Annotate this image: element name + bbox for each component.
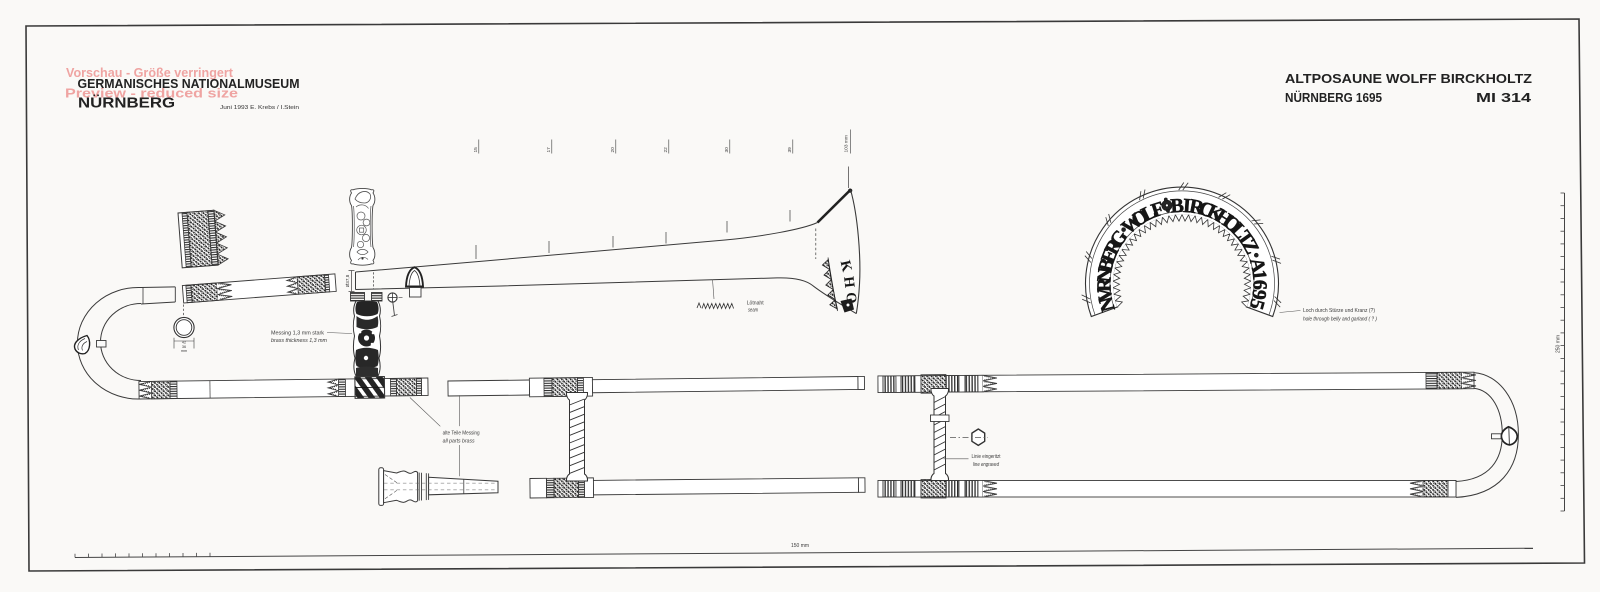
svg-text:250 mm: 250 mm: [1556, 335, 1562, 353]
svg-text:ALTPOSAUNE WOLFF BIRCKHOLTZ: ALTPOSAUNE WOLFF BIRCKHOLTZ: [1285, 71, 1532, 86]
svg-text:brass thickness 1,3 mm: brass thickness 1,3 mm: [271, 338, 327, 344]
svg-text:36: 36: [182, 345, 186, 349]
svg-text:all parts brass: all parts brass: [443, 439, 475, 445]
svg-text:GERMANISCHES NATIONALMUSEUM: GERMANISCHES NATIONALMUSEUM: [78, 76, 300, 91]
svg-text:22: 22: [663, 147, 669, 153]
svg-text:Linie eingeritzt: Linie eingeritzt: [972, 454, 1001, 460]
svg-text:Ø37,8: Ø37,8: [345, 274, 350, 287]
svg-text:seam: seam: [748, 308, 758, 314]
svg-text:30: 30: [724, 147, 730, 153]
svg-text:alte Teile Messing: alte Teile Messing: [443, 430, 480, 436]
svg-text:hole through belly and garland: hole through belly and garland ( ? ): [1303, 317, 1377, 323]
svg-text:Lötnaht: Lötnaht: [747, 301, 764, 307]
svg-text:NÜRNBERG 1695: NÜRNBERG 1695: [1285, 90, 1382, 105]
svg-text:15: 15: [473, 147, 479, 153]
svg-text:mm: mm: [181, 349, 187, 353]
svg-text:Loch durch Stürze und Kranz (: Loch durch Stürze und Kranz (?): [1303, 308, 1375, 314]
svg-text:20: 20: [610, 147, 616, 153]
svg-text:NÜRNBERG: NÜRNBERG: [78, 95, 175, 112]
svg-text:MI 314: MI 314: [1476, 90, 1532, 105]
svg-text:17: 17: [546, 147, 552, 153]
svg-text:Messing 1,3 mm stark: Messing 1,3 mm stark: [271, 331, 324, 337]
svg-text:line engraved: line engraved: [973, 462, 1000, 468]
svg-text:103 mm: 103 mm: [844, 135, 850, 152]
svg-text:39: 39: [787, 147, 793, 153]
svg-text:Juni 1993 E. Krebs / I.Stei: Juni 1993 E. Krebs / I.Stein: [220, 105, 299, 111]
svg-text:150 mm: 150 mm: [791, 543, 809, 549]
